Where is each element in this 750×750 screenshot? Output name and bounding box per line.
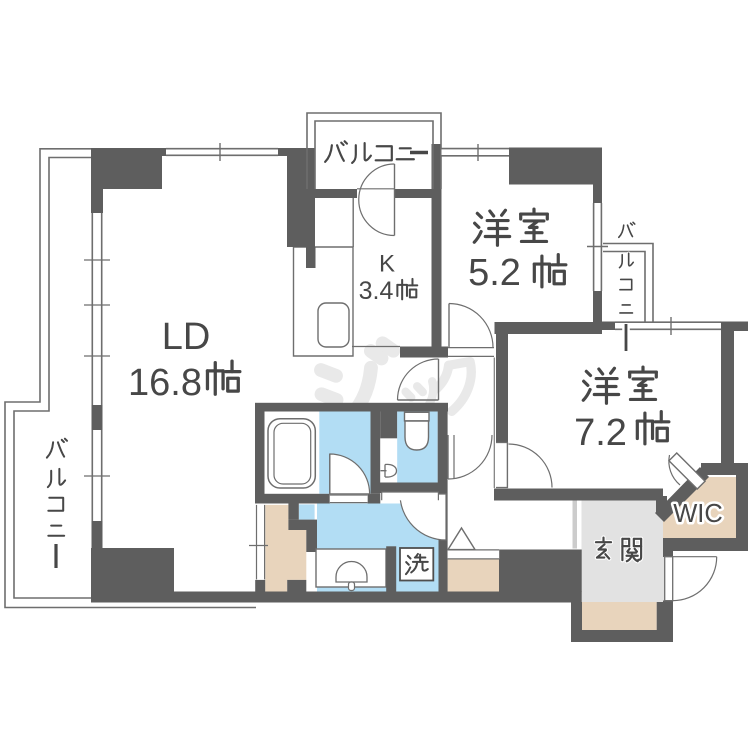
svg-text:7.2: 7.2	[574, 412, 627, 454]
svg-text:LD: LD	[162, 316, 211, 358]
svg-text:3.4: 3.4	[359, 277, 394, 305]
svg-text:16.8: 16.8	[128, 362, 202, 404]
svg-text:WIC: WIC	[673, 500, 723, 528]
svg-text:5.2: 5.2	[468, 252, 521, 294]
svg-text:K: K	[379, 251, 395, 278]
